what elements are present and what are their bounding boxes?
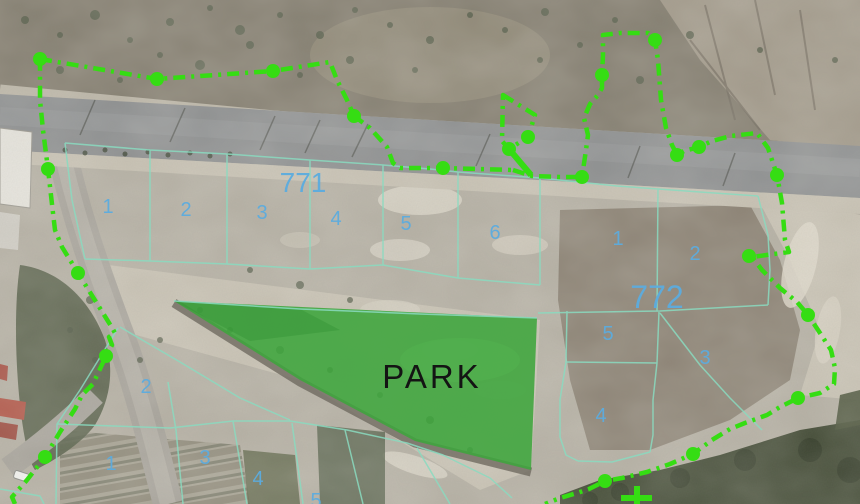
- parcel-number-771-4: 4: [330, 208, 341, 230]
- parcel-number-771-2: 2: [180, 199, 191, 221]
- screenshot-root: PARK 1 2 3: [0, 0, 860, 504]
- aerial-map-canvas[interactable]: PARK 1 2 3: [0, 0, 860, 504]
- block-label-771: 771: [280, 167, 327, 198]
- parcel-number-772-1: 1: [612, 228, 623, 250]
- parcel-number-bottom-1: 1: [105, 453, 116, 475]
- parcel-number-bottom-5: 5: [310, 490, 321, 504]
- parcel-number-772-3: 3: [699, 347, 710, 369]
- parcel-line: [566, 362, 657, 363]
- parcel-number-771-1: 1: [102, 196, 113, 218]
- parcel-number-771-5: 5: [400, 213, 411, 235]
- park-label: PARK: [382, 358, 481, 395]
- parcel-number-771-3: 3: [256, 202, 267, 224]
- parcel-number-771-6: 6: [489, 222, 500, 244]
- parcel-number-bottom-2: 2: [140, 376, 151, 398]
- parcel-number-bottom-4: 4: [252, 468, 263, 490]
- parcel-number-bottom-3: 3: [199, 447, 210, 469]
- parcel-number-772-4: 4: [595, 405, 606, 427]
- parcel-number-772-5: 5: [602, 323, 613, 345]
- block-label-772: 772: [630, 279, 683, 315]
- parcel-number-772-2: 2: [689, 243, 700, 265]
